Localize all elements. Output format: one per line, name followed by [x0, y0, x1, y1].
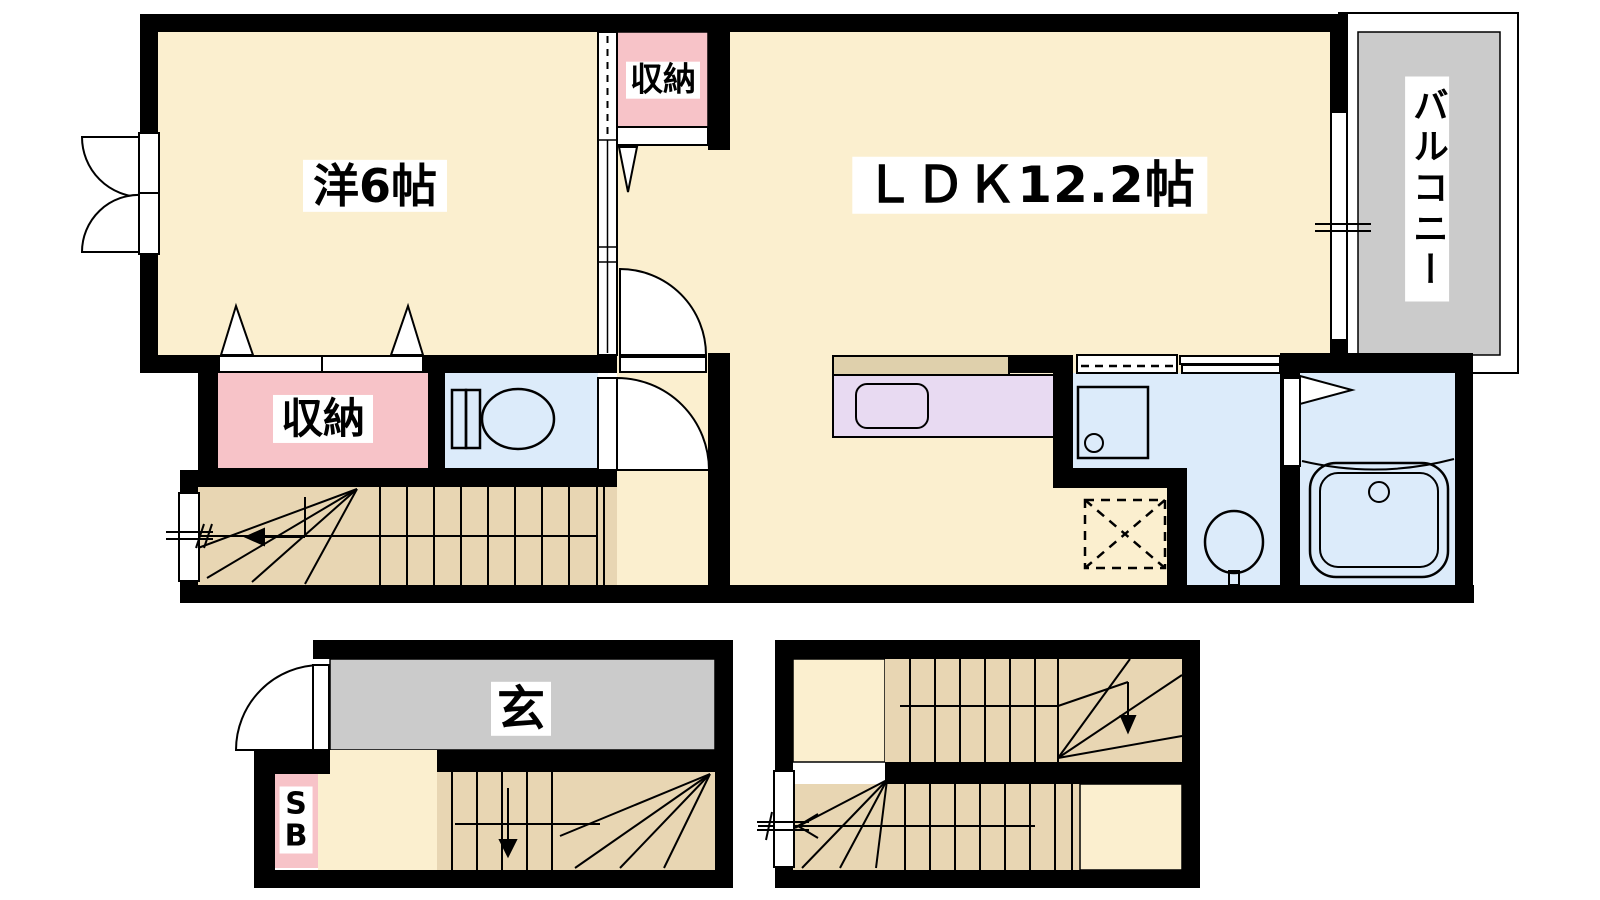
kitchen-counter-top [833, 356, 1009, 375]
label-ldk: ＬＤＫ12.2帖 [852, 157, 1207, 214]
floor-plan-page: 洋6帖 ＬＤＫ12.2帖 収納 収納 バルコニー 玄 S B [0, 0, 1600, 900]
label-shoe-box: S B [280, 787, 313, 854]
door-entry-arc [236, 665, 329, 750]
window-western-casement [82, 133, 159, 254]
entrance-hall-floor [318, 750, 437, 870]
stair-landing-lower [1080, 784, 1182, 870]
floor-plan-drawing [0, 0, 1600, 900]
door-partition-sliding [598, 32, 617, 355]
stair-landing-upper [793, 659, 885, 762]
toilet-room [445, 373, 598, 470]
label-closet-lower: 収納 [273, 395, 373, 443]
bathroom [1300, 373, 1455, 585]
label-balcony: バルコニー [1405, 77, 1449, 302]
stairs-upper-flight [885, 659, 1182, 762]
label-entrance: 玄 [491, 682, 551, 736]
stairs-1f [437, 772, 715, 870]
stairwell-plan [757, 640, 1200, 888]
main-floor-rooms [158, 32, 1455, 585]
label-closet-upper: 収納 [626, 62, 700, 99]
label-western-room: 洋6帖 [303, 160, 447, 212]
